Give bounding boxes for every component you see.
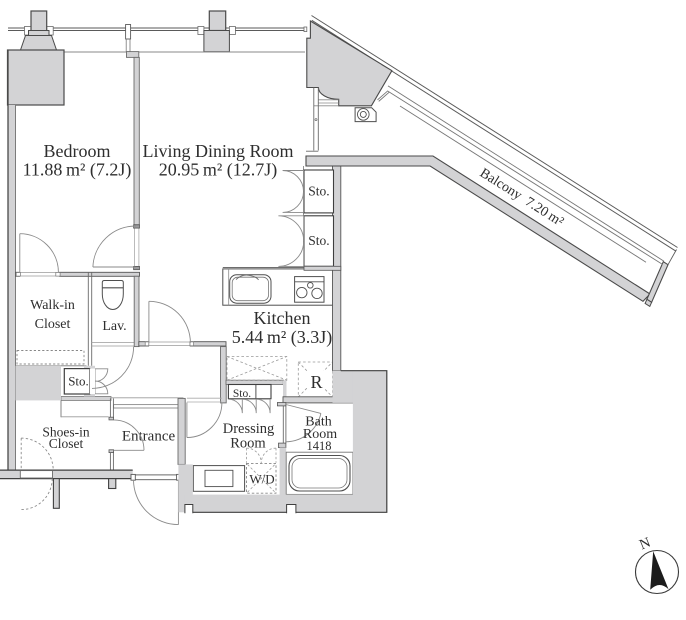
svg-text:5.44 m² (3.3J): 5.44 m² (3.3J) (232, 327, 333, 348)
svg-text:1418: 1418 (307, 439, 332, 453)
svg-text:Walk-in: Walk-in (30, 298, 75, 313)
svg-text:Sto.: Sto. (68, 374, 89, 389)
svg-text:Sto.: Sto. (233, 388, 251, 400)
svg-text:Entrance: Entrance (122, 428, 176, 444)
svg-text:W/D: W/D (249, 471, 274, 486)
svg-text:Closet: Closet (35, 317, 71, 332)
svg-text:11.88 m² (7.2J): 11.88 m² (7.2J) (23, 160, 132, 181)
svg-text:Sto.: Sto. (308, 184, 329, 199)
svg-text:R: R (310, 372, 322, 392)
svg-text:Sto.: Sto. (308, 233, 329, 248)
svg-text:Room: Room (230, 436, 266, 452)
svg-text:Bedroom: Bedroom (44, 141, 111, 161)
svg-text:20.95 m² (12.7J): 20.95 m² (12.7J) (159, 160, 278, 181)
svg-text:Closet: Closet (49, 436, 84, 451)
svg-text:Kitchen: Kitchen (254, 308, 311, 328)
svg-text:Lav.: Lav. (102, 319, 126, 334)
svg-text:Living Dining Room: Living Dining Room (142, 141, 293, 161)
